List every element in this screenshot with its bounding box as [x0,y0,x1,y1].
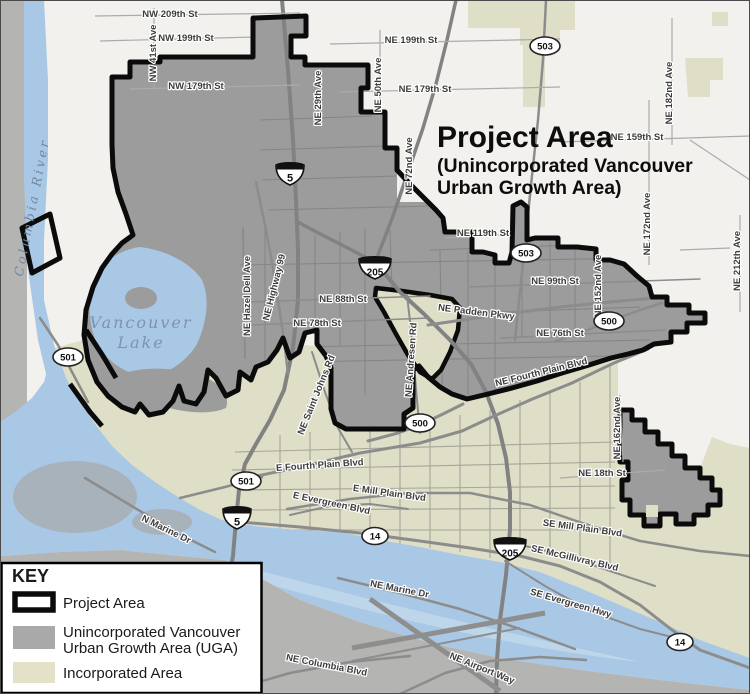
title-line1: Project Area [437,121,613,154]
svg-text:501: 501 [238,477,255,488]
legend-heading: KEY [12,566,49,586]
svg-text:503: 503 [518,249,534,260]
street-label-ne-152nd: NE 152nd Ave [593,255,604,318]
svg-text:501: 501 [60,353,77,364]
street-label-ne-182nd: NE 182nd Ave [664,62,675,125]
street-label-ne-159th: NE 159th St [611,132,665,143]
street-label-nw-179th: NW 179th St [168,81,224,92]
street-label-ne-172nd: NE 172nd Ave [642,193,653,256]
street-label-nw-199th: NW 199th St [158,33,214,44]
map-screenshot: Columbia River Vancouver Lake NW 209th S… [0,0,750,694]
street-label-ne-76th: NE 76th St [536,328,584,339]
street-label-ne-199th: NE 199th St [385,35,439,46]
vancouver-lake-label-line1: Vancouver [90,313,193,332]
route-501-shield-north: 501 [53,348,83,366]
svg-text:503: 503 [537,42,553,53]
route-500-shield-west: 500 [405,414,435,432]
svg-text:205: 205 [367,268,384,279]
svg-text:5: 5 [287,173,293,185]
route-14-shield-east: 14 [667,634,693,651]
map-canvas: Columbia River Vancouver Lake NW 209th S… [0,0,750,694]
street-label-ne-179th: NE 179th St [399,84,453,95]
route-500-shield-east: 500 [594,312,624,330]
street-label-ne-212th: NE 212th Ave [732,231,743,291]
legend-label-uga-line2: Urban Growth Area (UGA) [63,640,238,657]
legend-swatch-incorporated [13,662,55,683]
street-label-hazel-dell: NE Hazel Dell Ave [242,256,253,336]
legend: KEY Project Area Unincorporated Vancouve… [2,563,262,693]
title-line3: Urban Growth Area) [437,177,622,199]
lake-island [125,287,157,309]
route-501-shield-south: 501 [231,472,261,490]
route-503-shield-north: 503 [530,37,560,55]
incorporated-patch-north-4 [712,12,728,26]
svg-text:500: 500 [601,317,617,328]
svg-text:500: 500 [412,419,428,430]
legend-label-incorporated: Incorporated Area [63,665,183,682]
street-label-ne-88th: NE 88th St [319,294,367,305]
street-label-ne-50th: NE 50th Ave [373,58,384,113]
svg-text:14: 14 [370,532,381,543]
svg-text:14: 14 [675,638,686,649]
route-14-shield-west: 14 [362,528,388,545]
street-label-ne-78th: NE 78th St [293,318,341,329]
route-503-shield-mid: 503 [511,244,541,262]
title-line2: (Unincorporated Vancouver [437,155,693,177]
vancouver-lake-label-line2: Lake [116,333,164,352]
legend-swatch-uga [13,626,55,649]
legend-label-uga-line1: Unincorporated Vancouver [63,624,240,641]
lobe-incorporated-notch [646,505,658,517]
street-label-ne-72nd: NE 72nd Ave [404,137,415,194]
legend-swatch-project-area [15,594,53,610]
street-label-ne-29th: NE 29th Ave [313,71,324,126]
street-label-nw-209th: NW 209th St [142,9,198,20]
street-label-ne-99th: NE 99th St [531,276,579,287]
svg-text:5: 5 [234,517,240,529]
street-label-nw-41st: NW 41st Ave [148,25,159,82]
svg-text:205: 205 [502,549,519,560]
street-label-ne-18th: NE 18th St [578,468,626,479]
legend-label-project-area: Project Area [63,595,145,612]
street-label-ne-119th: NE 119th St [457,228,510,239]
street-label-ne-162nd: NE 162nd Ave [612,397,623,460]
